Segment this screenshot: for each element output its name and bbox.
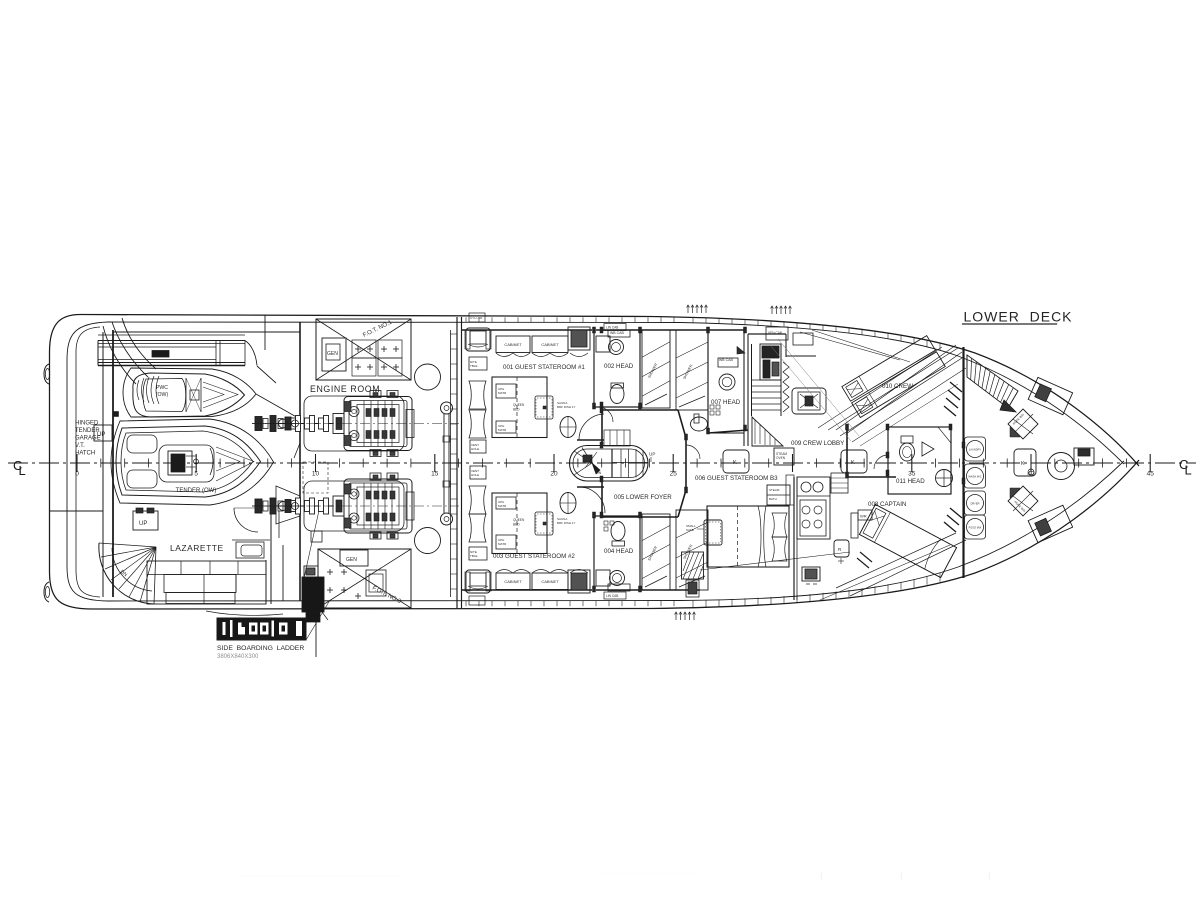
svg-text:CYL LKR: CYL LKR	[470, 316, 483, 320]
svg-text:DN: DN	[596, 471, 602, 475]
svg-text:QUEEN: QUEEN	[513, 518, 525, 522]
svg-text:002 HEAD: 002 HEAD	[604, 363, 634, 370]
svg-text:STEAM: STEAM	[769, 488, 780, 492]
svg-text:HOLE: HOLE	[471, 447, 479, 451]
svg-text:5: 5	[194, 471, 198, 478]
svg-text:CABINET: CABINET	[504, 342, 522, 347]
svg-text:005 LOWER FOYER: 005 LOWER FOYER	[614, 494, 672, 501]
svg-text:LOWER DECK: LOWER DECK	[964, 309, 1073, 325]
svg-text:LAZARETTE: LAZARETTE	[170, 543, 224, 553]
svg-text:WB CAB: WB CAB	[719, 358, 733, 362]
svg-text:WR: WR	[860, 514, 867, 519]
svg-text:(: (	[900, 870, 903, 880]
svg-text:BED: BED	[513, 523, 520, 527]
svg-text:QUEEN: QUEEN	[513, 403, 525, 407]
svg-text:10: 10	[312, 471, 320, 478]
svg-text:011 HEAD: 011 HEAD	[896, 478, 925, 485]
svg-text:GARAGE: GARAGE	[75, 436, 101, 442]
svg-text:LIN CAB: LIN CAB	[606, 594, 618, 598]
svg-text:007 HEAD: 007 HEAD	[711, 399, 741, 406]
svg-text:0: 0	[75, 471, 79, 478]
svg-text:UP: UP	[649, 452, 655, 457]
svg-text:MATR: MATR	[498, 542, 507, 546]
svg-text:SIDE BOARDING LADDER: SIDE BOARDING LADDER	[217, 645, 304, 652]
svg-text:25: 25	[670, 471, 678, 478]
svg-text:FOOD MIX: FOOD MIX	[969, 526, 982, 530]
svg-text:3806X840X300: 3806X840X300	[217, 654, 259, 660]
svg-text:35: 35	[908, 471, 916, 478]
svg-text:PWC: PWC	[156, 385, 168, 391]
svg-text:HOLE: HOLE	[471, 473, 479, 477]
svg-text:MATR: MATR	[498, 428, 507, 432]
svg-text:20: 20	[550, 471, 558, 478]
svg-text:MATR: MATR	[498, 504, 507, 508]
svg-text:VEN CAB: VEN CAB	[768, 331, 782, 335]
svg-text:TBLE: TBLE	[470, 554, 478, 558]
svg-text:MATR: MATR	[498, 391, 507, 395]
svg-text:BRF DISH 1Y: BRF DISH 1Y	[557, 405, 576, 409]
svg-text:L: L	[19, 463, 26, 478]
svg-text:LIN CAB: LIN CAB	[606, 326, 618, 330]
svg-text:009 CREW LOBBY: 009 CREW LOBBY	[791, 440, 844, 447]
svg-text:(: (	[988, 870, 991, 880]
svg-text:CABINET: CABINET	[504, 579, 522, 584]
svg-text:WASH M/C: WASH M/C	[968, 475, 981, 479]
svg-text:TENDER: TENDER	[75, 428, 100, 434]
svg-text:WB CAB: WB CAB	[610, 331, 624, 335]
svg-text:004 HEAD: 004 HEAD	[604, 548, 634, 555]
svg-text:OVEN: OVEN	[776, 456, 786, 460]
svg-text:GEN: GEN	[346, 557, 357, 563]
svg-text:15: 15	[431, 471, 439, 478]
svg-text:HINGED: HINGED	[75, 421, 99, 427]
svg-text:K: K	[733, 460, 737, 466]
svg-text:LAUNDRY: LAUNDRY	[969, 448, 982, 452]
svg-text:BATH: BATH	[769, 497, 777, 501]
svg-text:K: K	[851, 460, 855, 466]
svg-text:UP: UP	[139, 521, 147, 527]
svg-text:TBLE: TBLE	[470, 364, 478, 368]
svg-text:DRYER: DRYER	[970, 502, 979, 506]
svg-text:TENDER (OW): TENDER (OW)	[176, 488, 217, 494]
svg-text:(: (	[820, 870, 823, 880]
svg-text:BRF DISH 1Y: BRF DISH 1Y	[557, 521, 576, 525]
svg-text:006 GUEST STATEROOM B3: 006 GUEST STATEROOM B3	[695, 475, 778, 482]
svg-text:(OW): (OW)	[156, 392, 169, 398]
svg-text:CABINET: CABINET	[541, 579, 559, 584]
svg-text:L: L	[1185, 463, 1192, 478]
svg-text:GEN: GEN	[327, 351, 338, 357]
svg-text:BED: BED	[513, 408, 520, 412]
svg-text:45: 45	[1147, 471, 1155, 478]
svg-text:001 GUEST STATEROOM #1: 001 GUEST STATEROOM #1	[503, 364, 585, 371]
svg-text:HATCH: HATCH	[75, 451, 95, 457]
svg-text:SAFE: SAFE	[686, 528, 694, 532]
svg-text:K: K	[1021, 461, 1025, 467]
svg-text:CABINET: CABINET	[541, 342, 559, 347]
svg-text:V.T.: V.T.	[75, 443, 85, 449]
